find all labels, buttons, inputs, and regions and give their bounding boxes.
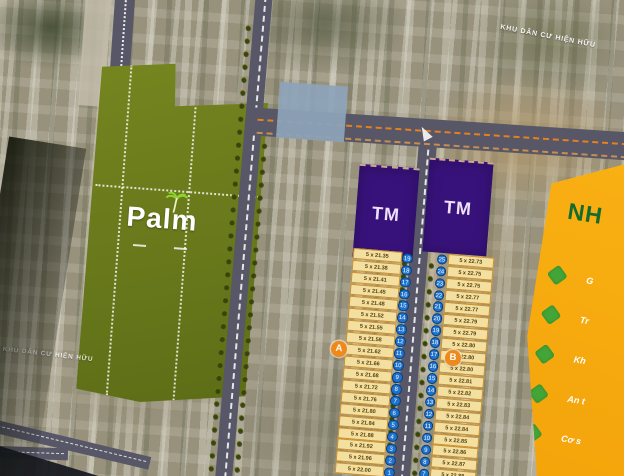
lot-number-badge: 6 — [389, 407, 400, 418]
feature-text-fragment: Tr — [579, 314, 589, 325]
lot-number-badge: 11 — [394, 348, 405, 359]
lot-number-badge: 24 — [435, 266, 446, 277]
palm-tree-icon — [160, 190, 190, 219]
feature-row: An t — [530, 384, 624, 427]
estate-boundary-dotted-line — [173, 107, 197, 400]
tagline-dash — [133, 244, 146, 247]
lot-number-badge: 18 — [429, 337, 440, 348]
lot-number-badge: 14 — [396, 312, 407, 323]
lot-number-badge: 5 — [388, 419, 399, 430]
lot-number-badge: 11 — [422, 420, 433, 431]
commercial-block-right: TM — [422, 158, 493, 257]
lot-number-badge: 13 — [424, 396, 435, 407]
diamond-bullet-icon — [547, 265, 568, 286]
lot-number-badge: 15 — [426, 373, 437, 384]
info-panel-heading: NH — [566, 198, 605, 230]
feature-row: G — [549, 266, 624, 309]
lot-number-badge: 10 — [421, 432, 432, 443]
lot-number-badge: 19 — [401, 253, 412, 264]
diamond-bullet-icon — [515, 462, 536, 476]
lot-number-badge: 1 — [384, 467, 395, 476]
lot-number-badge: 12 — [394, 336, 405, 347]
lot-number-badge: 23 — [434, 278, 445, 289]
feature-text-fragment: G — [586, 275, 594, 286]
lot-number-badge: 15 — [397, 300, 408, 311]
lot-number-badge: 21 — [432, 301, 443, 312]
lot-number-badge: 25 — [436, 254, 447, 265]
lot-number-badge: 14 — [425, 385, 436, 396]
lot-number-badge: 17 — [399, 276, 410, 287]
lot-number-badge: 8 — [419, 456, 430, 467]
lot-number-badge: 16 — [398, 288, 409, 299]
lot-number-badge: 7 — [390, 395, 401, 406]
plot-size-label: 5 x 22.00 — [335, 462, 384, 476]
lot-number-badge: 2 — [385, 455, 396, 466]
lot-number-badge: 16 — [427, 361, 438, 372]
lot-number-badge: 12 — [423, 408, 434, 419]
photo-fold-shadow — [0, 137, 86, 476]
feature-text-fragment: An t — [567, 393, 586, 406]
water-feature-block — [276, 82, 348, 143]
lot-number-badge: 17 — [428, 349, 439, 360]
info-panel: NH GTrKhAn tCơ s — [503, 158, 624, 476]
lot-number-badge: 3 — [386, 443, 397, 454]
feature-row: Tr — [542, 305, 624, 348]
diamond-bullet-icon — [534, 344, 555, 365]
lot-number-badge: 10 — [393, 360, 404, 371]
commercial-block-label: TM — [443, 196, 473, 219]
lot-number-badge: 22 — [433, 289, 444, 300]
existing-area-label-top: KHU DÂN CƯ HIỆN HỮU — [489, 22, 606, 51]
tagline-dash — [174, 247, 187, 250]
lot-number-badge: 9 — [420, 444, 431, 455]
info-panel-feature-list: GTrKhAn tCơ s — [514, 266, 624, 476]
lot-number-badge: 8 — [391, 384, 402, 395]
lot-number-badge: 9 — [392, 372, 403, 383]
feature-text-fragment: Kh — [573, 354, 586, 366]
lot-number-badge: 20 — [431, 313, 442, 324]
lot-number-badge: 18 — [400, 265, 411, 276]
lot-number-badge: 13 — [395, 324, 406, 335]
feature-row: Cơ s — [523, 424, 624, 467]
diamond-bullet-icon — [541, 304, 562, 325]
feature-row — [517, 463, 624, 476]
feature-text-fragment: Cơ s — [561, 433, 582, 446]
feature-row: Kh — [536, 345, 624, 388]
lot-number-badge: 19 — [430, 325, 441, 336]
diamond-bullet-icon — [528, 383, 549, 404]
printed-masterplan-map-photo: Palm TM TM 5 x 21.35195 x 21.38185 x 21.… — [0, 0, 624, 476]
lot-number-badge: 4 — [387, 431, 398, 442]
commercial-block-left: TM — [352, 164, 419, 262]
diamond-bullet-icon — [522, 423, 543, 444]
palm-logo: Palm — [104, 199, 221, 246]
commercial-block-label: TM — [371, 202, 401, 225]
lot-number-badge: 7 — [418, 468, 429, 476]
